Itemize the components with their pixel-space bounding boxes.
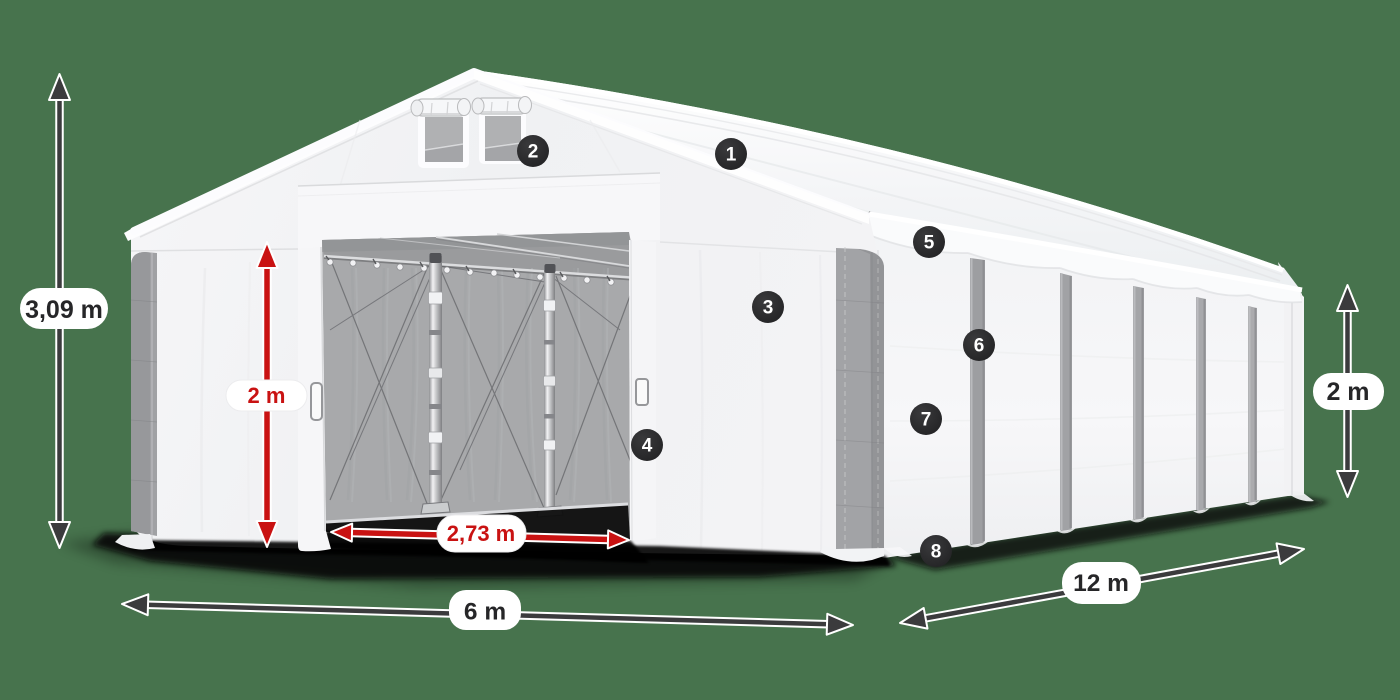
svg-text:2 m: 2 m [1326, 378, 1369, 406]
svg-text:2 m: 2 m [248, 383, 286, 408]
svg-text:2,73 m: 2,73 m [447, 521, 516, 546]
svg-text:12 m: 12 m [1073, 570, 1129, 597]
svg-text:6 m: 6 m [464, 599, 506, 626]
svg-text:3,09 m: 3,09 m [25, 296, 103, 324]
svg-text:6: 6 [974, 336, 985, 357]
svg-text:8: 8 [931, 542, 942, 563]
svg-text:1: 1 [726, 145, 737, 166]
svg-text:2: 2 [528, 142, 539, 163]
svg-text:7: 7 [921, 410, 932, 431]
svg-text:3: 3 [763, 298, 774, 319]
svg-text:4: 4 [642, 436, 653, 457]
svg-text:5: 5 [924, 233, 935, 254]
